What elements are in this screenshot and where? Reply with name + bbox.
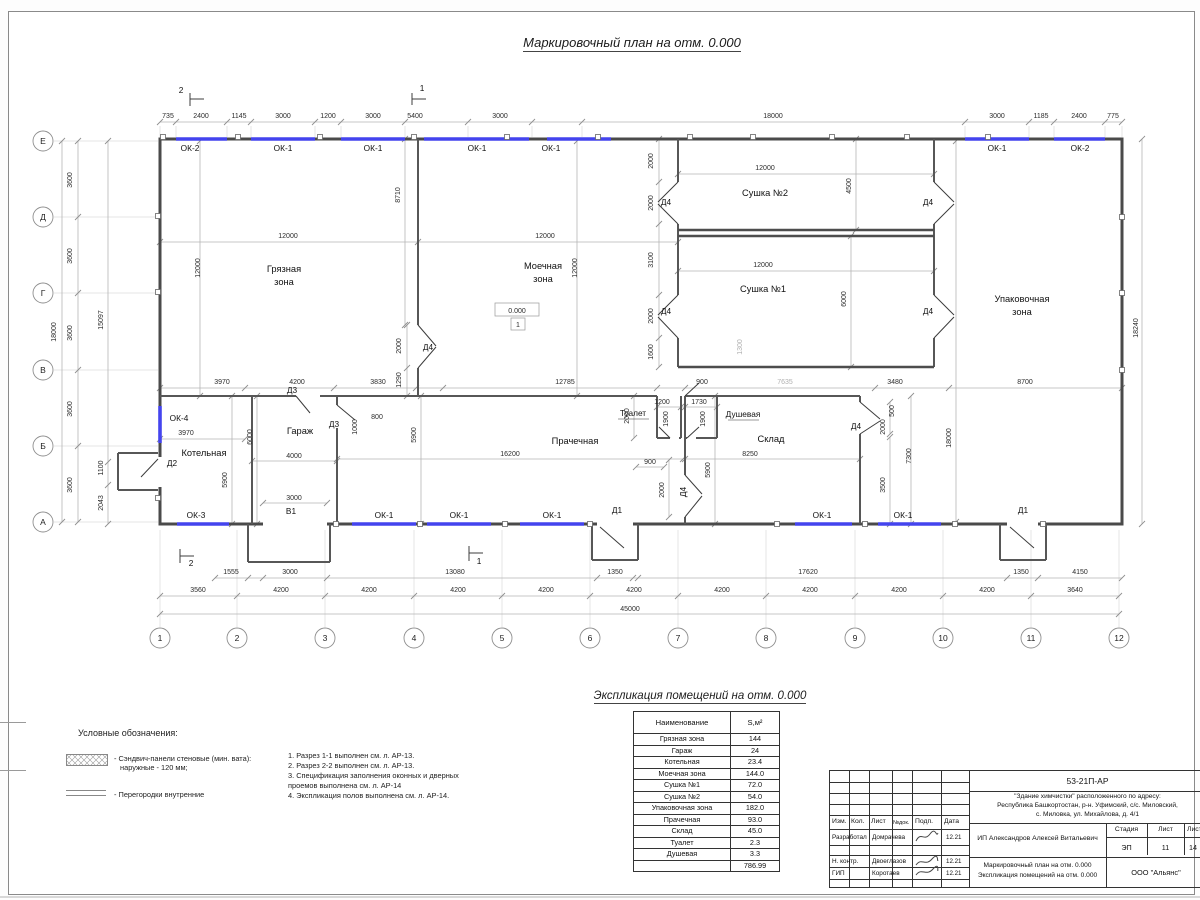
dim-label: 8250 <box>742 451 758 458</box>
dim-label: 18240 <box>1133 318 1140 338</box>
mark-label: 1 <box>420 83 425 93</box>
tb-stage-value: ЭП <box>1107 843 1146 852</box>
dim-label: 1900 <box>700 411 707 427</box>
dim-label: 12000 <box>753 262 773 269</box>
table-row: Упаковочная зона182.0 <box>634 803 780 815</box>
dim-label: 1900 <box>663 411 670 427</box>
tb-sheets-value: 14 <box>1189 843 1197 852</box>
tb-line <box>969 823 1200 824</box>
tb-stage-header: Стадия <box>1107 826 1146 833</box>
dim-label: 3560 <box>190 587 206 594</box>
axis-letter: А <box>40 517 46 527</box>
axis-number: 4 <box>412 633 417 643</box>
room-label: Упаковочная <box>994 294 1049 304</box>
dim-label: 3100 <box>648 252 655 268</box>
dim-label: 8700 <box>1017 379 1033 386</box>
dim-label: 900 <box>644 459 656 466</box>
room-label: Прачечная <box>552 436 599 446</box>
room-name: Туалет <box>634 837 731 849</box>
dim-label: 45000 <box>620 606 640 613</box>
total-spacer <box>634 860 731 872</box>
dim-label: 3640 <box>1067 587 1083 594</box>
tb-line <box>830 845 969 846</box>
room-name: Моечная зона <box>634 768 731 780</box>
dim-label: 12000 <box>195 258 202 278</box>
mark-label: ОК-2 <box>181 143 200 153</box>
mark-label: Д4 <box>678 486 688 497</box>
dim-label: 3600 <box>67 477 74 493</box>
room-schedule-table: Наименование S,м² Грязная зона144Гараж24… <box>633 711 780 872</box>
dim-label: 4200 <box>626 587 642 594</box>
drying-room-walls <box>678 230 934 367</box>
room-name: Сушка №2 <box>634 791 731 803</box>
axis-letter: Д <box>40 212 46 222</box>
room-name: Грязная зона <box>634 734 731 746</box>
dim-label: 1200 <box>320 113 336 120</box>
tb-col-ndok: №док. <box>893 820 909 826</box>
tb-line <box>830 815 969 816</box>
dim-label: 3000 <box>989 113 1005 120</box>
legend-item-2: - Перегородки внутренние <box>114 791 204 800</box>
room-label: зона <box>1012 307 1032 317</box>
table-row: Грязная зона144 <box>634 734 780 746</box>
tb-role-2: Н. контр. <box>832 858 858 865</box>
table-header-area: S,м² <box>731 712 780 734</box>
column-marker <box>156 214 161 219</box>
dim-label: 1555 <box>223 569 239 576</box>
dim-label: 1185 <box>1033 113 1048 120</box>
dim-label: 18000 <box>51 322 58 342</box>
dim-label: 12000 <box>572 258 579 278</box>
column-marker <box>905 135 910 140</box>
dim-label: 16200 <box>500 451 520 458</box>
tb-line <box>830 804 969 805</box>
notes: 1. Разрез 1-1 выполнен см. л. АР-13.2. Р… <box>288 751 459 801</box>
table-row: Сушка №172.0 <box>634 780 780 792</box>
mark-label: ОК-1 <box>543 510 562 520</box>
mark-label: ОК-1 <box>364 143 383 153</box>
column-marker <box>1120 215 1125 220</box>
axis-number: 5 <box>500 633 505 643</box>
mark-label: Д4 <box>851 421 862 431</box>
column-marker <box>863 522 868 527</box>
dim-label: 5400 <box>407 113 423 120</box>
dim-label: 1200 <box>654 399 670 406</box>
room-name: Сушка №1 <box>634 780 731 792</box>
axis-number: 12 <box>1114 633 1124 643</box>
note-line: 1. Разрез 1-1 выполнен см. л. АР-13. <box>288 751 459 761</box>
table-row: Сушка №254.0 <box>634 791 780 803</box>
dim-label: 2000 <box>648 153 655 169</box>
dim-label: 800 <box>371 414 383 421</box>
axis-number: 2 <box>235 633 240 643</box>
tb-client: ИП Александров Алексей Витальевич <box>971 835 1104 842</box>
tb-sheet-header: Лист <box>1148 826 1183 833</box>
mark-label: ОК-1 <box>813 510 832 520</box>
room-area: 45.0 <box>731 826 780 838</box>
mark-label: В1 <box>286 506 297 516</box>
column-marker <box>503 522 508 527</box>
dim-label: 4000 <box>286 453 302 460</box>
tb-col-list: Лист <box>871 818 886 825</box>
section-marks <box>180 93 483 563</box>
mark-label: ОК-4 <box>170 413 189 423</box>
dim-label: 1730 <box>691 399 707 406</box>
mark-label: ОК-1 <box>988 143 1007 153</box>
tb-line <box>1106 837 1200 838</box>
dim-label: 3500 <box>880 477 887 493</box>
mark-label: ОК-1 <box>274 143 293 153</box>
room-area: 144.0 <box>731 768 780 780</box>
room-area: 72.0 <box>731 780 780 792</box>
label-underlines <box>618 419 759 420</box>
dim-label: 1290 <box>396 372 403 388</box>
axis-number: 3 <box>323 633 328 643</box>
column-marker <box>688 135 693 140</box>
axis-number: 10 <box>938 633 948 643</box>
column-marker <box>156 496 161 501</box>
dim-label: 2000 <box>648 308 655 324</box>
signature <box>913 855 940 879</box>
external-walls <box>160 139 1122 524</box>
column-marker <box>1120 368 1125 373</box>
tb-address-1: "Здание химчистки" расположенного по адр… <box>971 793 1200 800</box>
mark-label: Д4 <box>661 306 672 316</box>
room-label: Гараж <box>287 426 314 436</box>
tb-doc-name-1: Маркировочный план на отм. 0.000 <box>971 862 1104 869</box>
tb-line <box>1184 823 1185 855</box>
tb-date-1: 12.21 <box>946 834 961 841</box>
tb-line <box>830 879 969 880</box>
room-name: Упаковочная зона <box>634 803 731 815</box>
dim-label: 12000 <box>278 233 298 240</box>
dim-label: 4200 <box>289 379 305 386</box>
dim-label: 5900 <box>705 462 712 478</box>
axis-number: 11 <box>1027 633 1036 643</box>
tb-line <box>969 857 1200 858</box>
tb-doc-code: 53-21П-АР <box>969 776 1200 786</box>
table-row: Склад45.0 <box>634 826 780 838</box>
tb-line <box>969 791 1200 792</box>
tb-sheets-header: Лист <box>1187 826 1200 833</box>
room-label: Котельная <box>181 448 226 458</box>
tb-role-1: Разработал <box>832 834 867 841</box>
dim-label: 2000 <box>396 338 403 354</box>
dim-label: 3000 <box>282 569 298 576</box>
dim-label: 6000 <box>841 291 848 307</box>
room-label: Моечная <box>524 261 562 271</box>
dim-label: 2000 <box>880 419 887 435</box>
tb-line <box>969 771 970 887</box>
tb-line <box>830 855 969 856</box>
table-total-row: 786.99 <box>634 860 780 872</box>
dim-label: 4200 <box>273 587 289 594</box>
mark-label: ОК-1 <box>468 143 487 153</box>
tb-name-1: Домрачева <box>872 834 905 841</box>
note-line: 4. Экспликация полов выполнена см. л. АР… <box>288 791 459 801</box>
dim-label: 4200 <box>538 587 554 594</box>
dim-label: 3830 <box>370 379 386 386</box>
mark-label: Д4 <box>923 197 934 207</box>
dim-label: 8710 <box>395 187 402 203</box>
column-marker <box>418 522 423 527</box>
room-name: Котельная <box>634 757 731 769</box>
dim-label: 7635 <box>777 379 793 386</box>
signature <box>913 829 940 845</box>
dim-label: 5900 <box>411 427 418 443</box>
dim-label: 17620 <box>798 569 818 576</box>
dim-label: 1300 <box>737 339 744 355</box>
dim-label: 4200 <box>714 587 730 594</box>
tb-line <box>830 782 969 783</box>
tb-address-2: Республика Башкортостан, р-н. Уфимский, … <box>971 802 1200 809</box>
dim-label: 12000 <box>755 165 775 172</box>
dim-label: 4200 <box>979 587 995 594</box>
tb-sheet-value: 11 <box>1148 843 1183 852</box>
dim-label: 3600 <box>67 172 74 188</box>
dim-label: 3000 <box>492 113 508 120</box>
dim-label: 3480 <box>887 379 903 386</box>
mark-label: ОК-1 <box>542 143 561 153</box>
table-row: Туалет2.3 <box>634 837 780 849</box>
legend-partition-symbol <box>66 790 106 796</box>
column-marker <box>986 135 991 140</box>
axis-number: 9 <box>853 633 858 643</box>
dim-label: 500 <box>889 405 896 417</box>
dim-label: 0.000 <box>508 308 526 315</box>
dim-label: 5900 <box>222 472 229 488</box>
dim-label: 775 <box>1107 113 1119 120</box>
room-name: Гараж <box>634 745 731 757</box>
tb-date-2: 12.21 <box>946 858 961 865</box>
axis-letter: Е <box>40 136 46 146</box>
column-marker <box>156 290 161 295</box>
room-name: Прачечная <box>634 814 731 826</box>
mark-label: 1 <box>477 556 482 566</box>
dim-label: 1100 <box>98 460 105 475</box>
tb-col-data: Дата <box>944 818 959 825</box>
axis-letter: В <box>40 365 46 375</box>
room-label: Склад <box>758 434 785 444</box>
table-row: Душевая3.3 <box>634 849 780 861</box>
mark-label: Д4 <box>423 342 434 352</box>
axis-number: 8 <box>764 633 769 643</box>
dim-label: 1000 <box>352 419 359 435</box>
note-line: 2. Разрез 2-2 выполнен см. л. АР-13. <box>288 761 459 771</box>
dim-label: 4200 <box>450 587 466 594</box>
tb-organization: ООО "Альянс" <box>1106 868 1200 877</box>
dim-label: 3000 <box>275 113 291 120</box>
mark-label: ОК-1 <box>450 510 469 520</box>
dim-label: 4200 <box>891 587 907 594</box>
dim-label: 18000 <box>763 113 783 120</box>
dim-label: 7300 <box>906 448 913 464</box>
table-row: Котельная23.4 <box>634 757 780 769</box>
dim-label: 3970 <box>178 430 194 437</box>
dim-label: 2400 <box>193 113 209 120</box>
axis-number: 1 <box>158 633 163 643</box>
tb-address-3: с. Миловка, ул. Михайлова, д. 4/1 <box>971 811 1200 818</box>
column-marker <box>1120 291 1125 296</box>
dim-label: 2000 <box>624 408 631 424</box>
room-label: Грязная <box>267 264 301 274</box>
dim-label: 2000 <box>648 195 655 211</box>
room-name: Склад <box>634 826 731 838</box>
room-label: зона <box>274 277 294 287</box>
room-area: 2.3 <box>731 837 780 849</box>
dim-label: 2000 <box>659 482 666 498</box>
room-label: Сушка №1 <box>740 284 786 294</box>
title-block: 53-21П-АР "Здание химчистки" расположенн… <box>829 770 1200 888</box>
tb-doc-name-2: Экспликация помещений на отм. 0.000 <box>971 872 1104 879</box>
mark-label: ОК-3 <box>187 510 206 520</box>
table-header-name: Наименование <box>634 712 731 734</box>
dim-label: 1350 <box>1013 569 1029 576</box>
dim-label: 4500 <box>846 178 853 194</box>
dim-label: 1145 <box>231 113 246 120</box>
column-marker <box>775 522 780 527</box>
dim-label: 735 <box>162 113 174 120</box>
mark-label: 2 <box>189 558 194 568</box>
column-marker <box>1041 522 1046 527</box>
tb-col-podp: Подп. <box>915 818 933 825</box>
room-area: 54.0 <box>731 791 780 803</box>
mark-label: Д4 <box>923 306 934 316</box>
table-title: Экспликация помещений на отм. 0.000 <box>560 690 840 702</box>
dim-label: 12000 <box>535 233 555 240</box>
dim-label: 18000 <box>946 428 953 448</box>
axis-number: 6 <box>588 633 593 643</box>
mark-label: Д4 <box>661 197 672 207</box>
room-name: Душевая <box>634 849 731 861</box>
dim-label: 3970 <box>214 379 230 386</box>
tb-line <box>830 867 969 868</box>
column-marker <box>830 135 835 140</box>
mark-label: ОК-2 <box>1071 143 1090 153</box>
room-area: 3.3 <box>731 849 780 861</box>
column-marker <box>588 522 593 527</box>
dim-label: 15097 <box>98 310 105 330</box>
dim-label: 12785 <box>555 379 575 386</box>
legend: Условные обозначения: <box>78 728 178 738</box>
room-area: 23.4 <box>731 757 780 769</box>
column-marker <box>596 135 601 140</box>
column-marker <box>505 135 510 140</box>
column-marker <box>953 522 958 527</box>
mark-label: Душевая <box>726 409 761 419</box>
column-marker <box>412 135 417 140</box>
dim-label: 3600 <box>67 325 74 341</box>
dim-label: 1 <box>516 322 520 329</box>
column-marker <box>318 135 323 140</box>
mark-label: ОК-1 <box>375 510 394 520</box>
partition-swatch-icon <box>66 790 106 796</box>
dim-label: 3000 <box>286 495 302 502</box>
mark-label: Д2 <box>167 458 178 468</box>
dim-label: 900 <box>696 379 708 386</box>
dim-label: 1600 <box>648 344 655 360</box>
tb-name-3: Коротаев <box>872 870 900 877</box>
dim-label: 4200 <box>802 587 818 594</box>
legend-item-1: - Сэндвич-панели стеновые (мин. вата): н… <box>114 755 251 772</box>
column-marker <box>236 135 241 140</box>
tb-date-3: 12.21 <box>946 870 961 877</box>
legend-title: Условные обозначения: <box>78 728 178 738</box>
tb-name-2: Двоеглазов <box>872 858 906 865</box>
axis-letter: Г <box>41 288 46 298</box>
room-area: 144 <box>731 734 780 746</box>
tb-col-kol: Кол. <box>851 818 864 825</box>
dim-label: 3600 <box>67 248 74 264</box>
column-marker <box>751 135 756 140</box>
dim-label: 3600 <box>67 401 74 417</box>
room-area: 24 <box>731 745 780 757</box>
dim-label: 2043 <box>98 495 105 511</box>
mark-label: Д3 <box>329 419 340 429</box>
dim-label: 13080 <box>445 569 465 576</box>
column-marker <box>161 135 166 140</box>
axis-number: 7 <box>676 633 681 643</box>
tb-role-3: ГИП <box>832 870 845 877</box>
dim-label: 6000 <box>247 429 254 445</box>
mark-label: ОК-1 <box>894 510 913 520</box>
note-line: 3. Спецификация заполнения оконных и две… <box>288 771 459 781</box>
mark-label: Д1 <box>612 505 623 515</box>
column-marker <box>334 522 339 527</box>
mark-label: Д3 <box>287 385 298 395</box>
drawing-sheet: { "titles": { "main": "Маркировочный пла… <box>0 0 1200 900</box>
dim-label: 1350 <box>607 569 623 576</box>
room-label: Сушка №2 <box>742 188 788 198</box>
table-row: Прачечная93.0 <box>634 814 780 826</box>
room-area: 93.0 <box>731 814 780 826</box>
room-area: 182.0 <box>731 803 780 815</box>
room-label: зона <box>533 274 553 284</box>
legend-sandwich-symbol <box>66 753 108 771</box>
total-area: 786.99 <box>731 860 780 872</box>
dim-label: 2400 <box>1071 113 1087 120</box>
table-row: Моечная зона144.0 <box>634 768 780 780</box>
hatch-swatch-icon <box>66 754 108 766</box>
tb-col-izm: Изм. <box>832 818 847 825</box>
dim-label: 3000 <box>365 113 381 120</box>
windows <box>160 139 1105 524</box>
dim-label: 4150 <box>1072 569 1088 576</box>
table-row: Гараж24 <box>634 745 780 757</box>
mark-label: 2 <box>179 85 184 95</box>
dim-label: 4200 <box>361 587 377 594</box>
axis-letter: Б <box>40 441 46 451</box>
mark-label: Д1 <box>1018 505 1029 515</box>
note-line: проемов выполнена см. л. АР-14 <box>288 781 459 791</box>
tb-line <box>830 829 969 830</box>
tb-line <box>830 793 969 794</box>
